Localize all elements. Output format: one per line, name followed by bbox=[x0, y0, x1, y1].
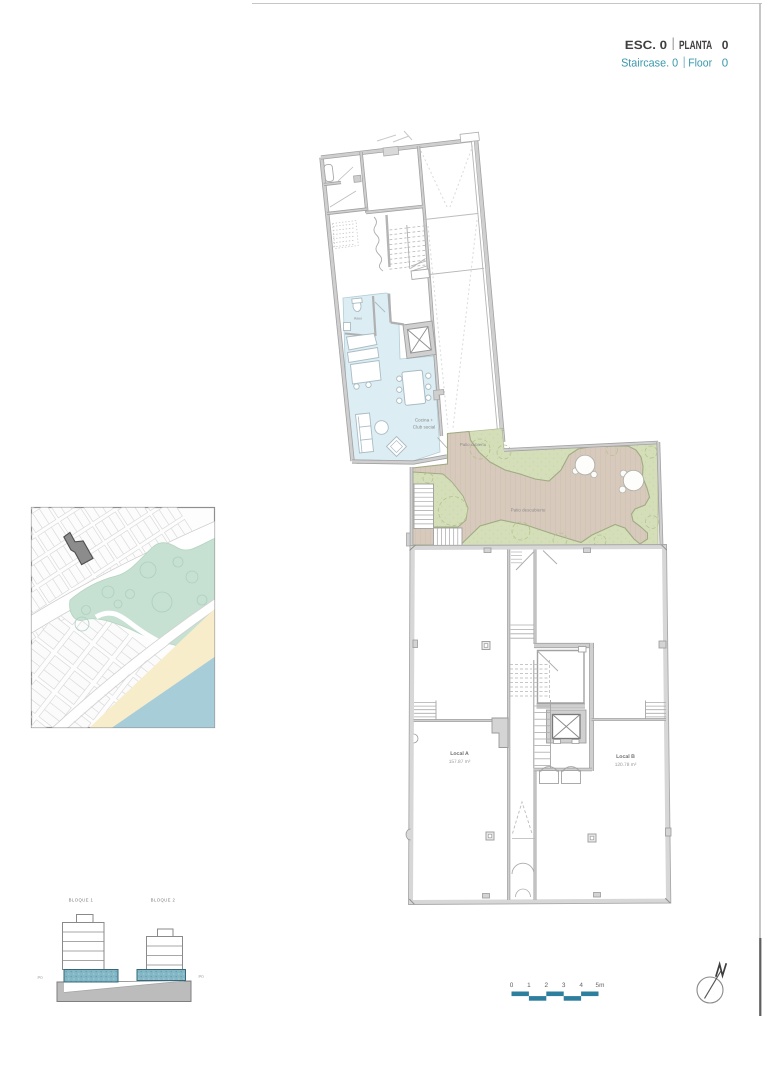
svg-text:BLOQUE 2: BLOQUE 2 bbox=[151, 898, 176, 903]
svg-text:0: 0 bbox=[722, 58, 728, 70]
svg-text:Floor: Floor bbox=[688, 58, 712, 70]
svg-text:Patio descubierto: Patio descubierto bbox=[511, 508, 546, 513]
svg-text:3: 3 bbox=[562, 982, 566, 989]
svg-text:P0: P0 bbox=[37, 975, 43, 980]
svg-text:Staircase. 0: Staircase. 0 bbox=[621, 58, 678, 70]
svg-text:Local A: Local A bbox=[450, 751, 469, 757]
svg-text:PLANTA: PLANTA bbox=[679, 38, 712, 52]
svg-text:4: 4 bbox=[579, 982, 583, 989]
svg-text:0: 0 bbox=[722, 38, 729, 52]
svg-text:Club social: Club social bbox=[413, 425, 435, 430]
svg-text:Aseo: Aseo bbox=[354, 317, 362, 321]
svg-text:1: 1 bbox=[527, 982, 531, 989]
svg-text:ESC. 0: ESC. 0 bbox=[625, 38, 668, 52]
svg-text:Local B: Local B bbox=[616, 754, 635, 760]
svg-text:P0: P0 bbox=[198, 974, 204, 979]
svg-text:157.87 m²: 157.87 m² bbox=[449, 759, 471, 765]
svg-text:0: 0 bbox=[510, 982, 514, 989]
svg-text:Patio cubierto: Patio cubierto bbox=[460, 442, 487, 447]
svg-text:Cocina +: Cocina + bbox=[415, 418, 434, 423]
svg-text:BLOQUE 1: BLOQUE 1 bbox=[69, 898, 94, 903]
svg-text:5m: 5m bbox=[596, 982, 605, 989]
svg-text:120.78 m²: 120.78 m² bbox=[615, 762, 637, 768]
svg-text:2: 2 bbox=[545, 982, 549, 989]
